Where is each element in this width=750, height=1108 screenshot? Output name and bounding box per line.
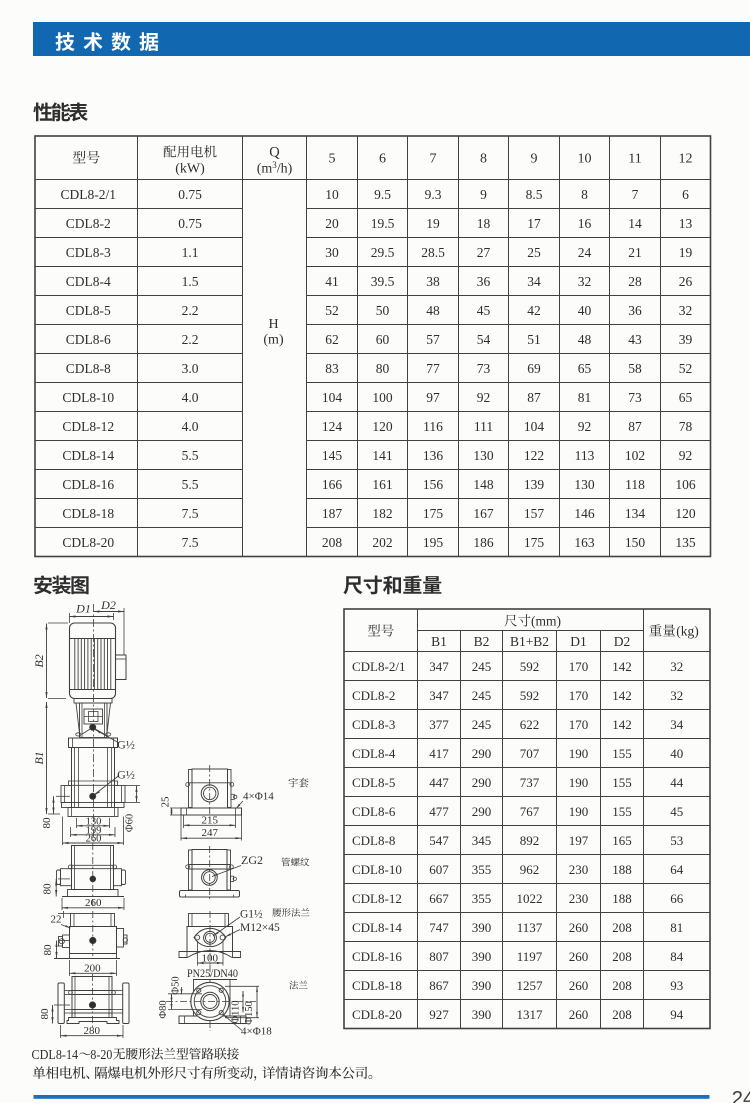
svg-text:83: 83 [325,361,339,376]
svg-text:116: 116 [423,419,443,434]
svg-text:36: 36 [628,303,642,318]
svg-text:145: 145 [322,448,343,463]
svg-text:36: 36 [477,274,491,289]
svg-text:8-20: 8-20 [90,1047,112,1062]
svg-text:260: 260 [569,1007,589,1022]
svg-text:CDL8-2/1: CDL8-2/1 [61,187,117,202]
svg-text:190: 190 [569,746,589,761]
svg-text:D1: D1 [570,634,587,649]
svg-text:747: 747 [429,920,449,935]
svg-text:14: 14 [628,216,642,231]
svg-text:17: 17 [527,216,541,231]
svg-text:(kg): (kg) [676,624,699,639]
svg-text:157: 157 [524,506,545,521]
svg-text:156: 156 [423,477,444,492]
svg-text:188: 188 [612,891,632,906]
svg-text:148: 148 [473,477,494,492]
svg-text:260: 260 [569,920,589,935]
svg-text:355: 355 [472,891,492,906]
svg-text:CDL8-16: CDL8-16 [62,477,114,492]
svg-text:(mm): (mm) [531,614,561,629]
svg-text:40: 40 [578,303,592,318]
svg-text:PN25/DN40: PN25/DN40 [187,968,238,980]
svg-text:247: 247 [201,827,218,839]
svg-text:417: 417 [429,746,449,761]
svg-text:CDL8-3: CDL8-3 [352,717,395,732]
svg-text:260: 260 [85,897,102,909]
svg-text:48: 48 [578,332,592,347]
svg-text:CDL8-2/1: CDL8-2/1 [352,659,405,674]
svg-text:9: 9 [531,152,538,167]
svg-text:73: 73 [628,390,642,405]
svg-text:807: 807 [429,949,449,964]
svg-text:Φ50: Φ50 [171,976,182,994]
svg-text:CDL8-2: CDL8-2 [66,216,111,231]
svg-text:G½: G½ [117,768,135,782]
svg-text:38: 38 [426,274,440,289]
svg-text:34: 34 [527,274,541,289]
svg-text:CDL8-12: CDL8-12 [352,891,402,906]
svg-text:1.1: 1.1 [182,245,199,260]
svg-text:CDL8-10: CDL8-10 [352,862,402,877]
svg-text:190: 190 [569,804,589,819]
svg-text:65: 65 [578,361,592,376]
svg-text:124: 124 [322,419,343,434]
svg-text:190: 190 [569,775,589,790]
svg-text:34: 34 [670,717,684,732]
svg-text:Q: Q [269,145,280,161]
svg-text:20: 20 [325,216,339,231]
svg-text:245: 245 [472,659,492,674]
svg-text:100: 100 [202,952,219,964]
svg-text:87: 87 [628,419,642,434]
svg-text:80: 80 [376,361,390,376]
svg-text:80: 80 [39,1008,51,1020]
svg-text:64: 64 [670,862,684,877]
svg-text:29.5: 29.5 [371,245,395,260]
svg-text:40: 40 [670,746,683,761]
svg-text:4.0: 4.0 [182,390,199,405]
svg-text:290: 290 [472,775,492,790]
svg-text:5.5: 5.5 [182,448,199,463]
svg-text:8: 8 [581,187,588,202]
svg-text:CDL8-16: CDL8-16 [352,949,402,964]
svg-text:CDL8-12: CDL8-12 [62,419,114,434]
svg-text:5.5: 5.5 [182,477,199,492]
svg-text:215: 215 [201,814,218,826]
svg-text:80: 80 [42,883,54,895]
svg-text:347: 347 [429,688,449,703]
svg-text:390: 390 [472,920,492,935]
svg-text:260: 260 [569,949,589,964]
svg-text:22: 22 [51,914,62,926]
svg-text:477: 477 [429,804,449,819]
svg-text:Φ80: Φ80 [158,1000,169,1018]
svg-text:4×Φ14: 4×Φ14 [243,791,274,803]
svg-text:8.5: 8.5 [526,187,543,202]
svg-text:CDL8-4: CDL8-4 [352,746,396,761]
svg-text:93: 93 [670,978,683,993]
svg-text:B2: B2 [474,634,490,649]
svg-text:25: 25 [160,796,172,808]
svg-text:146: 146 [574,506,595,521]
svg-text:290: 290 [472,746,492,761]
svg-text:97: 97 [426,390,440,405]
svg-text:113: 113 [575,448,595,463]
svg-text:52: 52 [679,361,693,376]
svg-text:9: 9 [480,187,487,202]
svg-text:CDL8-14: CDL8-14 [32,1047,79,1062]
svg-text:1022: 1022 [517,891,543,906]
svg-text:7: 7 [430,152,437,167]
svg-text:142: 142 [612,659,632,674]
svg-text:166: 166 [322,477,343,492]
svg-text:118: 118 [625,477,645,492]
svg-text:161: 161 [372,477,392,492]
svg-text:G1½: G1½ [240,909,263,921]
svg-text:2.2: 2.2 [182,303,199,318]
svg-text:1197: 1197 [517,949,543,964]
svg-text:B1: B1 [32,751,46,764]
svg-text:81: 81 [578,390,592,405]
svg-text:45: 45 [670,804,683,819]
svg-text:M12×45: M12×45 [240,922,280,934]
svg-text:44: 44 [670,775,684,790]
svg-text:28.5: 28.5 [421,245,445,260]
svg-text:84: 84 [670,949,684,964]
svg-text:32: 32 [578,274,592,289]
svg-text:10: 10 [578,152,592,167]
svg-text:69: 69 [527,361,541,376]
svg-text:CDL8-5: CDL8-5 [352,775,395,790]
svg-text:260: 260 [569,978,589,993]
svg-text:165: 165 [612,833,632,848]
svg-text:12: 12 [679,152,693,167]
svg-text:345: 345 [472,833,492,848]
svg-text:208: 208 [322,535,343,550]
svg-text:CDL8-20: CDL8-20 [62,535,114,550]
svg-text:135: 135 [675,535,696,550]
svg-text:D2: D2 [100,598,116,612]
svg-text:24: 24 [578,245,592,260]
svg-text:27: 27 [477,245,491,260]
svg-text:6: 6 [682,187,689,202]
svg-text:163: 163 [574,535,595,550]
svg-text:D1: D1 [75,602,91,616]
svg-text:927: 927 [429,1007,449,1022]
svg-text:9.5: 9.5 [374,187,391,202]
svg-text:195: 195 [423,535,444,550]
svg-text:24: 24 [732,1087,750,1103]
svg-text:B1: B1 [431,634,447,649]
svg-text:737: 737 [520,775,540,790]
svg-text:B2: B2 [32,654,46,667]
svg-text:39: 39 [679,332,693,347]
svg-text:CDL8-18: CDL8-18 [352,978,402,993]
svg-text:390: 390 [472,1007,492,1022]
svg-text:175: 175 [524,535,545,550]
svg-text:CDL8-8: CDL8-8 [352,833,395,848]
svg-text:ZG2: ZG2 [241,853,263,867]
svg-text:32: 32 [670,659,683,674]
svg-text:77: 77 [426,361,440,376]
svg-text:62: 62 [325,332,339,347]
svg-text:65: 65 [679,390,693,405]
svg-text:390: 390 [472,978,492,993]
svg-text:4.0: 4.0 [182,419,199,434]
svg-text:81: 81 [670,920,683,935]
svg-text:60: 60 [376,332,390,347]
svg-text:622: 622 [520,717,540,732]
svg-text:208: 208 [612,1007,632,1022]
svg-text:0.75: 0.75 [178,216,202,231]
svg-text:42: 42 [527,303,541,318]
svg-text:104: 104 [524,419,545,434]
svg-text:CDL8-6: CDL8-6 [352,804,396,819]
svg-text:187: 187 [322,506,343,521]
svg-text:19.5: 19.5 [371,216,395,231]
svg-text:200: 200 [84,962,101,974]
svg-text:58: 58 [628,361,642,376]
svg-text:CDL8-14: CDL8-14 [62,448,114,463]
svg-text:707: 707 [520,746,540,761]
svg-text:122: 122 [524,448,544,463]
svg-text:170: 170 [569,717,589,732]
svg-text:(m): (m) [263,333,284,348]
svg-text:45: 45 [477,303,491,318]
svg-text:87: 87 [527,390,541,405]
svg-text:120: 120 [675,506,696,521]
svg-text:19: 19 [679,245,693,260]
svg-text:1257: 1257 [517,978,544,993]
svg-text:962: 962 [520,862,540,877]
svg-text:208: 208 [612,949,632,964]
svg-text:CDL8-2: CDL8-2 [352,688,395,703]
svg-text:390: 390 [472,949,492,964]
svg-text:25: 25 [527,245,541,260]
svg-text:592: 592 [520,659,540,674]
svg-text:92: 92 [477,390,491,405]
svg-text:4×Φ18: 4×Φ18 [241,1026,272,1038]
svg-text:G½: G½ [117,738,135,752]
svg-text:155: 155 [612,804,632,819]
svg-text:208: 208 [612,978,632,993]
svg-text:592: 592 [520,688,540,703]
svg-text:7.5: 7.5 [182,535,199,550]
svg-text:(kW): (kW) [175,162,205,177]
svg-text:136: 136 [423,448,444,463]
svg-text:32: 32 [670,688,683,703]
svg-text:202: 202 [372,535,392,550]
svg-text:167: 167 [473,506,494,521]
svg-text:28: 28 [628,274,642,289]
svg-text:1317: 1317 [517,1007,544,1022]
svg-text:54: 54 [477,332,491,347]
svg-text:142: 142 [612,717,632,732]
svg-text:1137: 1137 [517,920,543,935]
svg-text:5: 5 [329,152,336,167]
svg-text:66: 66 [670,891,684,906]
svg-text:7.5: 7.5 [182,506,199,521]
svg-text:447: 447 [429,775,449,790]
svg-text:30: 30 [325,245,339,260]
svg-text:53: 53 [670,833,683,848]
svg-text:230: 230 [569,891,589,906]
svg-text:CDL8-14: CDL8-14 [352,920,402,935]
svg-text:547: 547 [429,833,449,848]
svg-text:94: 94 [670,1007,684,1022]
svg-text:188: 188 [612,862,632,877]
svg-text:347: 347 [429,659,449,674]
svg-text:607: 607 [429,862,449,877]
svg-text:1.5: 1.5 [182,274,199,289]
svg-text:182: 182 [372,506,392,521]
svg-text:CDL8-3: CDL8-3 [66,245,111,260]
svg-text:120: 120 [372,419,393,434]
svg-text:104: 104 [322,390,343,405]
svg-text:208: 208 [612,920,632,935]
svg-text:102: 102 [625,448,645,463]
svg-text:26: 26 [679,274,693,289]
svg-text:80: 80 [41,817,53,829]
svg-text:280: 280 [83,1025,100,1037]
svg-text:377: 377 [429,717,449,732]
svg-text:134: 134 [625,506,646,521]
svg-text:11: 11 [628,152,641,167]
svg-text:92: 92 [679,448,693,463]
svg-text:Φ60: Φ60 [125,814,136,832]
svg-text:CDL8-10: CDL8-10 [62,390,114,405]
svg-text:50: 50 [376,303,390,318]
svg-text:51: 51 [527,332,541,347]
svg-text:6: 6 [379,152,386,167]
svg-text:32: 32 [679,303,693,318]
svg-text:155: 155 [612,746,632,761]
svg-text:155: 155 [612,775,632,790]
svg-text:21: 21 [628,245,642,260]
svg-text:78: 78 [679,419,693,434]
svg-text:CDL8-20: CDL8-20 [352,1007,402,1022]
svg-text:2.2: 2.2 [182,332,199,347]
svg-text:170: 170 [569,659,589,674]
svg-text:52: 52 [325,303,339,318]
svg-text:CDL8-5: CDL8-5 [66,303,111,318]
svg-text:D2: D2 [614,634,631,649]
svg-text:41: 41 [325,274,339,289]
svg-text:CDL8-4: CDL8-4 [66,274,111,289]
svg-text:892: 892 [520,833,540,848]
svg-text:260: 260 [86,834,102,845]
svg-text:767: 767 [520,804,540,819]
svg-text:18: 18 [477,216,491,231]
svg-text:667: 667 [429,891,449,906]
svg-text:175: 175 [423,506,444,521]
svg-text:57: 57 [426,332,440,347]
svg-text:73: 73 [477,361,491,376]
svg-text:197: 197 [569,833,589,848]
svg-text:0.75: 0.75 [178,187,202,202]
svg-text:106: 106 [675,477,696,492]
svg-text:355: 355 [472,862,492,877]
svg-text:10: 10 [325,187,339,202]
svg-text:8: 8 [480,152,487,167]
svg-text:43: 43 [628,332,642,347]
svg-text:H: H [268,317,278,332]
svg-text:92: 92 [578,419,592,434]
svg-text:230: 230 [569,862,589,877]
svg-text:186: 186 [473,535,494,550]
svg-text:39.5: 39.5 [371,274,395,289]
svg-text:245: 245 [472,688,492,703]
svg-text:Φ110: Φ110 [231,1000,242,1023]
svg-text:245: 245 [472,717,492,732]
svg-text:CDL8-18: CDL8-18 [62,506,114,521]
svg-text:19: 19 [426,216,440,231]
svg-text:3.0: 3.0 [182,361,199,376]
svg-text:B1+B2: B1+B2 [510,634,549,649]
svg-text:CDL8-6: CDL8-6 [66,332,111,347]
svg-text:13: 13 [679,216,693,231]
svg-text:111: 111 [474,419,493,434]
svg-text:16: 16 [578,216,592,231]
svg-text:139: 139 [524,477,545,492]
svg-text:867: 867 [429,978,449,993]
svg-text:CDL8-8: CDL8-8 [66,361,111,376]
svg-text:100: 100 [372,390,393,405]
svg-text:80: 80 [42,944,54,956]
svg-text:142: 142 [612,688,632,703]
svg-text:150: 150 [625,535,646,550]
svg-text:48: 48 [426,303,440,318]
svg-text:9.3: 9.3 [425,187,442,202]
svg-text:130: 130 [574,477,595,492]
svg-text:141: 141 [372,448,392,463]
svg-text:170: 170 [569,688,589,703]
svg-text:130: 130 [473,448,494,463]
svg-text:Φ150: Φ150 [244,1001,255,1024]
svg-text:290: 290 [472,804,492,819]
svg-text:7: 7 [632,187,639,202]
